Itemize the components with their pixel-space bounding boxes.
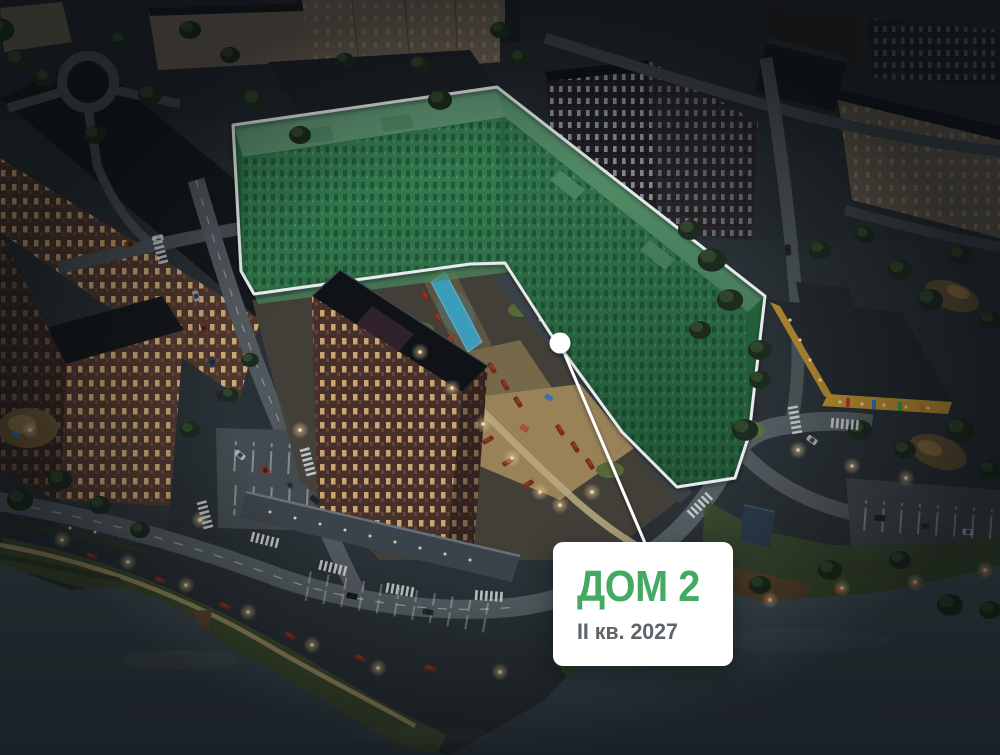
- vignette: [0, 0, 1000, 755]
- building-marker-dot[interactable]: [550, 333, 571, 354]
- building-info-card[interactable]: ДОМ 2 II кв. 2027: [553, 542, 733, 666]
- building-name-label: ДОМ 2: [577, 563, 717, 611]
- completion-date-label: II кв. 2027: [577, 619, 728, 645]
- masterplan-viewport: ДОМ 2 II кв. 2027: [0, 0, 1000, 755]
- masterplan-render: [0, 0, 1000, 755]
